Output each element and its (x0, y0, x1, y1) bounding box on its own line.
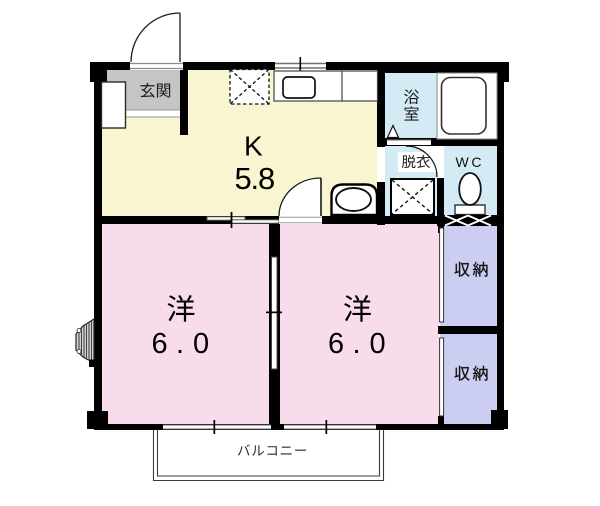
svg-text:6: 6 (152, 328, 168, 360)
svg-text:6: 6 (328, 328, 344, 360)
svg-text:.: . (353, 328, 361, 360)
svg-text:0: 0 (370, 328, 386, 360)
svg-text:K: K (244, 131, 263, 162)
svg-text:0: 0 (193, 328, 209, 360)
svg-text:WC: WC (456, 154, 485, 170)
svg-text:5.8: 5.8 (235, 161, 275, 196)
svg-text:.: . (176, 328, 184, 360)
